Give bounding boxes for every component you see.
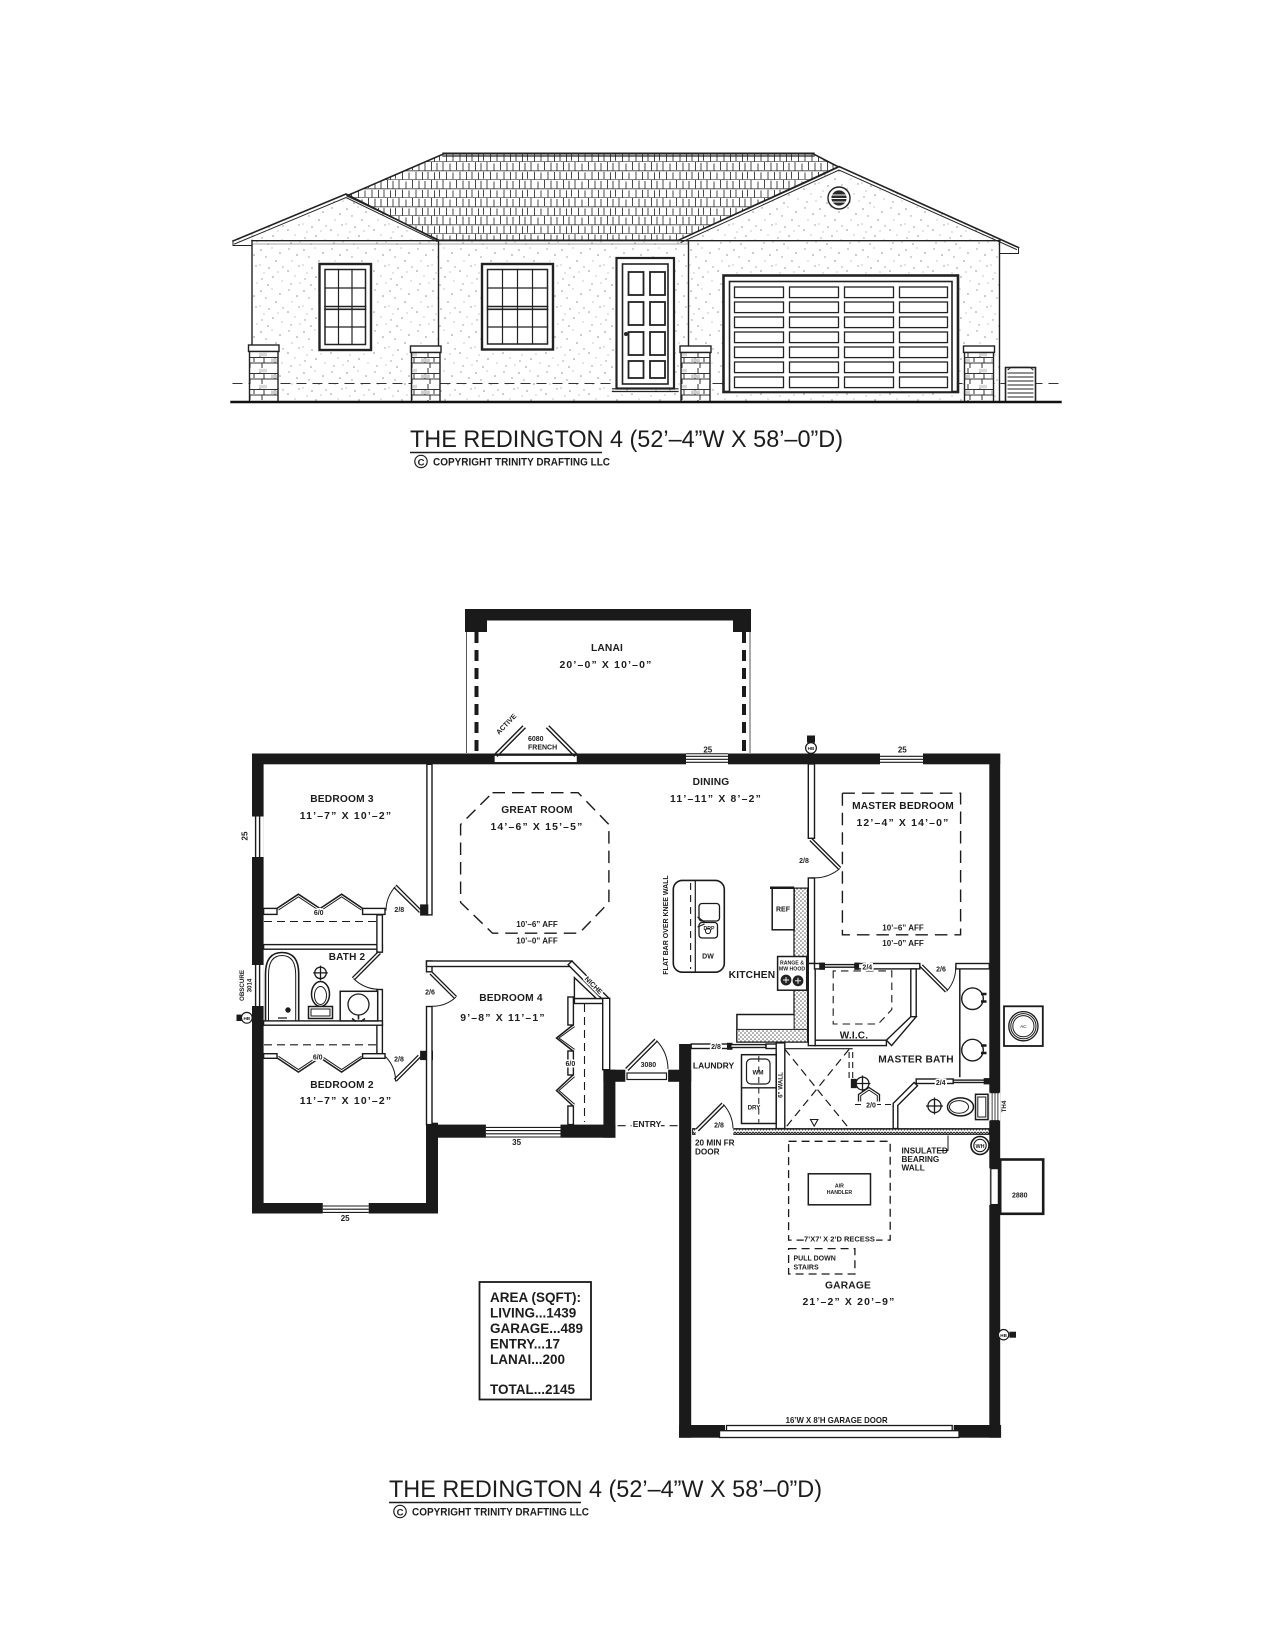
svg-text:6080: 6080 xyxy=(528,736,544,743)
svg-text:35: 35 xyxy=(512,1138,521,1147)
svg-text:BEDROOM 4: BEDROOM 4 xyxy=(479,993,543,1004)
svg-text:3014: 3014 xyxy=(247,978,254,992)
svg-text:10’–6” AFF: 10’–6” AFF xyxy=(882,924,924,933)
svg-text:TH4: TH4 xyxy=(1001,1100,1008,1112)
svg-text:20 MIN FR: 20 MIN FR xyxy=(695,1139,735,1148)
svg-text:25: 25 xyxy=(703,745,712,754)
svg-text:DRP: DRP xyxy=(704,926,715,932)
svg-text:14’–6” X 15’–5”: 14’–6” X 15’–5” xyxy=(490,822,583,833)
svg-text:11’–11” X 8’–2”: 11’–11” X 8’–2” xyxy=(670,794,762,805)
svg-text:KITCHEN: KITCHEN xyxy=(729,970,776,981)
svg-text:ENTRY...17: ENTRY...17 xyxy=(490,1337,560,1352)
svg-text:LANAI: LANAI xyxy=(591,643,623,654)
svg-text:2/4: 2/4 xyxy=(936,1080,946,1087)
svg-text:WH: WH xyxy=(976,1144,985,1150)
svg-text:WALL: WALL xyxy=(902,1164,925,1173)
svg-text:25: 25 xyxy=(241,831,250,840)
svg-text:2/6: 2/6 xyxy=(936,967,946,974)
svg-text:LANAI...200: LANAI...200 xyxy=(490,1352,565,1367)
svg-text:DRY: DRY xyxy=(748,1105,762,1112)
svg-text:21’–2” X 20’–9”: 21’–2” X 20’–9” xyxy=(802,1297,895,1308)
svg-text:2/8: 2/8 xyxy=(799,858,809,865)
svg-text:12’–4” X 14’–0”: 12’–4” X 14’–0” xyxy=(856,818,949,829)
svg-text:GARAGE: GARAGE xyxy=(825,1281,871,1292)
svg-text:20’–0” X 10’–0”: 20’–0” X 10’–0” xyxy=(559,660,652,671)
svg-text:COPYRIGHT TRINITY DRAFTING LLC: COPYRIGHT TRINITY DRAFTING LLC xyxy=(412,1507,589,1519)
svg-text:TOTAL...2145: TOTAL...2145 xyxy=(490,1382,576,1397)
svg-text:2880: 2880 xyxy=(1012,1193,1028,1200)
svg-text:MW HOOD: MW HOOD xyxy=(779,967,805,973)
svg-text:REF: REF xyxy=(776,907,791,914)
svg-text:HB: HB xyxy=(243,1016,250,1021)
svg-text:9’–8” X 11’–1”: 9’–8” X 11’–1” xyxy=(460,1013,546,1024)
svg-text:25: 25 xyxy=(898,745,907,754)
svg-text:C: C xyxy=(418,457,425,468)
svg-text:ENTRY: ENTRY xyxy=(633,1119,662,1129)
svg-text:6/0: 6/0 xyxy=(313,1055,323,1062)
svg-text:16’W X 8’H GARAGE DOOR: 16’W X 8’H GARAGE DOOR xyxy=(786,1416,888,1425)
svg-text:BATH 2: BATH 2 xyxy=(329,952,366,963)
svg-text:BEDROOM 3: BEDROOM 3 xyxy=(310,794,374,805)
svg-text:LAUNDRY: LAUNDRY xyxy=(693,1061,735,1071)
svg-text:THE REDINGTON 4 (52’–4”W X 58’: THE REDINGTON 4 (52’–4”W X 58’–0”D) xyxy=(410,426,843,453)
svg-text:AC: AC xyxy=(1020,1024,1027,1029)
svg-text:HANDLER: HANDLER xyxy=(827,1190,853,1196)
svg-text:AREA (SQFT):: AREA (SQFT): xyxy=(490,1290,581,1305)
svg-text:2/8: 2/8 xyxy=(394,907,404,914)
svg-text:HB: HB xyxy=(1000,1333,1007,1338)
svg-text:OBSCURE: OBSCURE xyxy=(239,970,246,1001)
svg-text:11’–7” X 10’–2”: 11’–7” X 10’–2” xyxy=(300,1096,393,1107)
svg-text:W.I.C.: W.I.C. xyxy=(840,1031,868,1042)
svg-text:2/8: 2/8 xyxy=(394,1057,404,1064)
svg-text:STAIRS: STAIRS xyxy=(794,1265,819,1272)
svg-text:6/0: 6/0 xyxy=(566,1061,576,1068)
svg-text:11’–7” X 10’–2”: 11’–7” X 10’–2” xyxy=(300,811,393,822)
svg-text:FLAT BAR OVER KNEE WALL: FLAT BAR OVER KNEE WALL xyxy=(663,875,670,975)
svg-text:10’–6” AFF: 10’–6” AFF xyxy=(516,920,558,929)
svg-text:AIR: AIR xyxy=(835,1184,844,1190)
svg-text:MASTER BATH: MASTER BATH xyxy=(878,1055,954,1066)
svg-text:25: 25 xyxy=(341,1214,350,1223)
svg-text:LIVING...1439: LIVING...1439 xyxy=(490,1306,576,1321)
svg-text:C: C xyxy=(397,1507,404,1518)
svg-text:DOOR: DOOR xyxy=(695,1148,720,1157)
svg-text:BEDROOM 2: BEDROOM 2 xyxy=(310,1080,374,1091)
svg-text:10’–0” AFF: 10’–0” AFF xyxy=(516,937,558,946)
svg-text:6/0: 6/0 xyxy=(314,910,324,917)
svg-text:10’–0” AFF: 10’–0” AFF xyxy=(882,939,924,948)
svg-text:GARAGE...489: GARAGE...489 xyxy=(490,1321,583,1336)
svg-text:PULL DOWN: PULL DOWN xyxy=(794,1256,836,1263)
svg-text:FRENCH: FRENCH xyxy=(528,745,557,752)
svg-text:MASTER BEDROOM: MASTER BEDROOM xyxy=(852,801,954,812)
svg-text:6” WALL: 6” WALL xyxy=(778,1072,785,1098)
svg-text:HB: HB xyxy=(808,746,815,751)
svg-text:DW: DW xyxy=(702,954,714,961)
svg-text:2/4: 2/4 xyxy=(862,965,872,972)
svg-text:2/6: 2/6 xyxy=(425,990,435,997)
svg-text:GREAT ROOM: GREAT ROOM xyxy=(501,805,572,816)
svg-text:2/0: 2/0 xyxy=(866,1103,876,1110)
svg-text:7’X7’ X 2’D RECESS: 7’X7’ X 2’D RECESS xyxy=(804,1235,875,1244)
svg-text:DINING: DINING xyxy=(693,777,730,788)
svg-text:COPYRIGHT TRINITY DRAFTING LLC: COPYRIGHT TRINITY DRAFTING LLC xyxy=(433,457,610,469)
svg-text:3080: 3080 xyxy=(641,1062,657,1069)
svg-text:2/8: 2/8 xyxy=(714,1123,724,1130)
svg-text:WM: WM xyxy=(753,1070,764,1077)
svg-text:THE REDINGTON 4 (52’–4”W X 58’: THE REDINGTON 4 (52’–4”W X 58’–0”D) xyxy=(389,1476,822,1503)
svg-text:2/8: 2/8 xyxy=(711,1044,721,1051)
